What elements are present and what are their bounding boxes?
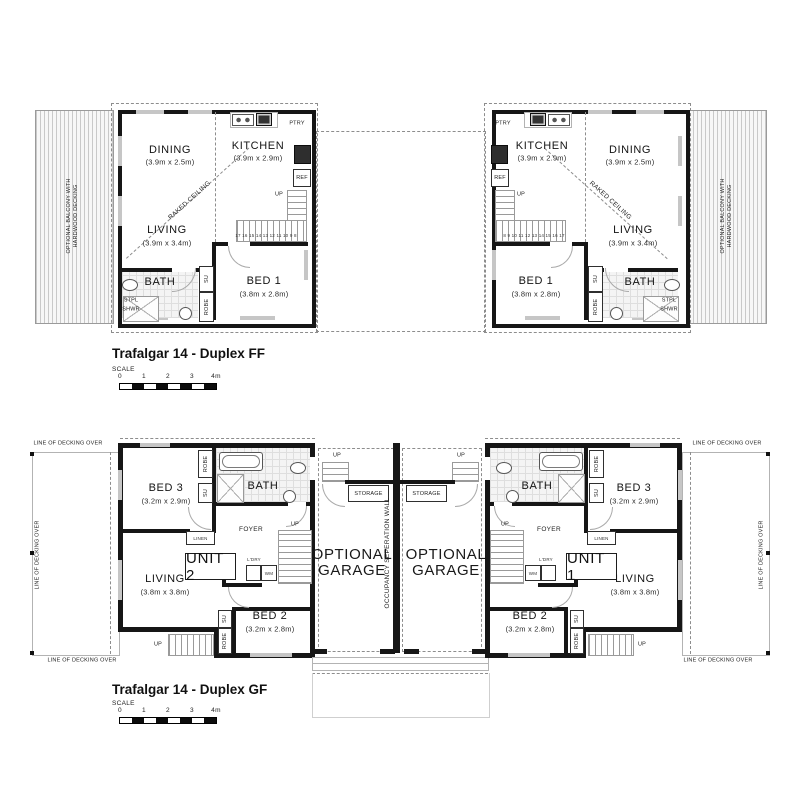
living-right-dim: (3.9m x 3.4m) <box>609 238 658 247</box>
toilet-icon <box>664 279 680 291</box>
robe-ff-left-label: ROBE <box>204 299 210 315</box>
balcony-left-label: OPTIONAL BALCONY WITH HARDWOOD DECKING <box>66 178 80 253</box>
window <box>492 250 496 280</box>
wall <box>120 529 190 533</box>
gf-title: Trafalgar 14 - Duplex GF <box>112 682 267 697</box>
gf-left-up-label: UP <box>291 522 299 529</box>
window <box>678 196 682 226</box>
oven-tower-icon <box>294 145 311 164</box>
gf-scale-bar <box>119 717 217 724</box>
window <box>525 316 560 320</box>
su-gf-left-bed2: SU <box>218 610 232 628</box>
living-gf-right-label: LIVING <box>615 573 655 587</box>
su-gf-left-top-label: SU <box>203 489 209 497</box>
basin-icon <box>283 490 296 503</box>
window <box>188 110 212 114</box>
gf-left-roof-dash <box>120 438 315 439</box>
bed3-left-dim: (3.2m x 2.9m) <box>142 496 191 505</box>
ff-scale-tick: 0 <box>118 373 122 381</box>
garage-right-label: OPTIONAL GARAGE <box>406 547 487 579</box>
door-arc <box>228 587 249 608</box>
cooktop-icon <box>548 114 570 126</box>
driveway <box>312 673 490 718</box>
garage-right-line1: OPTIONAL <box>406 547 487 563</box>
wall <box>122 268 172 272</box>
shower-icon <box>558 474 585 503</box>
living-gf-right-dim: (3.8m x 3.8m) <box>611 587 660 596</box>
bath-gf-left-label: BATH <box>248 480 279 494</box>
su-ff-left-label: SU <box>204 275 210 283</box>
fridge-right: REF <box>491 169 509 187</box>
decking-label: LINE OF DECKING OVER <box>759 520 766 589</box>
bed3-right-dim: (3.2m x 2.9m) <box>610 496 659 505</box>
wall <box>250 242 308 246</box>
window <box>140 443 170 447</box>
robe-gf-left-top: ROBE <box>198 450 213 478</box>
bath-gf-right-label: BATH <box>522 480 553 494</box>
window <box>304 250 308 280</box>
deck-left <box>32 452 120 656</box>
ff-right-up-label: UP <box>517 192 525 199</box>
gf-scale-tick: 4m <box>211 707 221 715</box>
su-gf-right-bed2-label: SU <box>574 615 580 623</box>
bed1-right-dim: (3.8m x 2.8m) <box>512 289 561 298</box>
gf-scale-tick: 3 <box>190 707 194 715</box>
robe-gf-right-top: ROBE <box>589 450 604 478</box>
stpl-left-label: STPL <box>124 298 139 305</box>
wall <box>232 607 236 655</box>
window <box>250 653 292 657</box>
balcony-left-line2: HARDWOOD DECKING <box>73 178 80 253</box>
window <box>136 110 164 114</box>
kitchen-right-label: KITCHEN <box>516 140 568 154</box>
wall <box>118 627 218 632</box>
window <box>588 110 612 114</box>
bed3-left-label: BED 3 <box>149 482 184 496</box>
storage-right: STORAGE <box>406 485 447 502</box>
linen-right-label: LINEN <box>594 536 608 541</box>
ff-scale-tick: 3 <box>190 373 194 381</box>
deck-post <box>30 452 34 456</box>
sink-icon <box>530 113 546 126</box>
basin-icon <box>610 307 623 320</box>
basin-icon <box>179 307 192 320</box>
pantry-right-label: PTRY <box>495 121 510 128</box>
bed2-right-label: BED 2 <box>513 610 548 624</box>
deck-post <box>766 452 770 456</box>
gf-right-stairs <box>490 530 524 584</box>
dining-left-label: DINING <box>149 144 191 158</box>
door-arc <box>552 587 573 608</box>
shwr-left-label: SHWR <box>122 307 140 314</box>
ff-scale-bar <box>119 383 217 390</box>
wm-left-label: WM <box>265 571 273 576</box>
gf-scale-tick: 0 <box>118 707 122 715</box>
bed1-right-label: BED 1 <box>519 275 554 289</box>
wall <box>404 649 419 654</box>
basin-icon <box>506 490 519 503</box>
gf-right-roof-dash <box>485 438 680 439</box>
gf-scale-tick: 1 <box>142 707 146 715</box>
storage-left-label: STORAGE <box>354 491 382 497</box>
window <box>678 560 682 600</box>
gf-right-entry-steps <box>588 634 634 656</box>
decking-label: LINE OF DECKING OVER <box>35 520 42 589</box>
fridge-right-label: REF <box>494 175 506 181</box>
linen-left: LINEN <box>186 531 215 545</box>
wall <box>582 627 682 632</box>
su-ff-left: SU <box>199 266 214 292</box>
bed3-right-label: BED 3 <box>617 482 652 496</box>
wall <box>492 242 550 246</box>
wall <box>380 649 395 654</box>
garage-apron <box>312 663 489 671</box>
su-gf-left-top: SU <box>198 483 213 503</box>
deck-post <box>766 651 770 655</box>
robe-ff-right: ROBE <box>588 292 603 322</box>
garage-right-entry-stairs <box>452 462 479 482</box>
kitchen-left-dim: (3.9m x 2.9m) <box>234 153 283 162</box>
toilet-icon <box>496 462 512 474</box>
deck-post <box>766 551 770 555</box>
wall <box>345 480 455 484</box>
garage-right-up-label: UP <box>457 453 465 460</box>
fridge-left: REF <box>293 169 311 187</box>
bed1-left-dim: (3.8m x 2.8m) <box>240 289 289 298</box>
living-left-label: LIVING <box>147 224 187 238</box>
linen-left-label: LINEN <box>193 536 207 541</box>
balcony-right-line1: OPTIONAL BALCONY WITH <box>720 178 727 253</box>
ff-right-stairs-upper <box>495 190 515 222</box>
window <box>678 136 682 166</box>
washing-machine-right: WM <box>525 565 541 581</box>
oven-tower-icon <box>491 145 508 164</box>
toilet-icon <box>290 462 306 474</box>
balcony-left-line1: OPTIONAL BALCONY WITH <box>66 178 73 253</box>
bed2-left-dim: (3.2m x 2.8m) <box>246 624 295 633</box>
kitchen-left-label: KITCHEN <box>232 140 284 154</box>
ff-scale-tick: 2 <box>166 373 170 381</box>
ff-scale-tick: 1 <box>142 373 146 381</box>
window <box>240 316 275 320</box>
gf-right-steps-up-label: UP <box>638 642 646 649</box>
bed1-left-label: BED 1 <box>247 275 282 289</box>
ff-right-ceiling-line <box>585 112 586 242</box>
window <box>630 443 660 447</box>
cooktop-icon <box>232 114 254 126</box>
ff-left-stairs-upper <box>287 190 307 222</box>
garage-left-label: OPTIONAL GARAGE <box>312 547 393 579</box>
wall <box>485 502 494 506</box>
bath-ff-left-label: BATH <box>145 276 176 290</box>
toilet-icon <box>122 279 138 291</box>
unit1-box: UNIT 1 <box>566 553 617 580</box>
window <box>118 196 122 226</box>
dining-right-dim: (3.9m x 2.5m) <box>606 157 655 166</box>
gf-left-entry-steps <box>168 634 214 656</box>
su-gf-right-top-label: SU <box>594 489 600 497</box>
door-arc <box>188 507 211 530</box>
robe-gf-right-bed2: ROBE <box>570 628 584 654</box>
wall <box>312 649 327 654</box>
ldry-right-label: L'DRY <box>539 557 553 563</box>
foyer-left-label: FOYER <box>239 526 263 534</box>
bed2-right-dim: (3.2m x 2.8m) <box>506 624 555 633</box>
floorplan-canvas: OPTIONAL BALCONY WITH HARDWOOD DECKING O… <box>0 0 800 800</box>
washing-machine-left: WM <box>261 565 277 581</box>
balcony-right-line2: HARDWOOD DECKING <box>727 178 734 253</box>
unit2-box: UNIT 2 <box>185 553 236 580</box>
gf-right-up-label: UP <box>501 522 509 529</box>
su-gf-right-top: SU <box>589 483 604 503</box>
robe-gf-left-bed2-label: ROBE <box>222 633 228 649</box>
garage-right-line2: GARAGE <box>406 563 487 579</box>
fridge-left-label: REF <box>296 175 308 181</box>
ff-right-stair-numbers: 8 9 10 11 12 13 14 15 16 17 <box>503 233 564 239</box>
su-gf-right-bed2: SU <box>570 610 584 628</box>
window <box>118 560 122 600</box>
living-gf-left-label: LIVING <box>145 573 185 587</box>
kitchen-right-dim: (3.9m x 2.9m) <box>518 153 567 162</box>
deck-post <box>30 651 34 655</box>
gf-scale-tick: 2 <box>166 707 170 715</box>
gf-left-steps-up-label: UP <box>154 642 162 649</box>
window <box>508 653 550 657</box>
robe-gf-left-bed2: ROBE <box>218 628 232 654</box>
decking-label: LINE OF DECKING OVER <box>47 658 116 665</box>
robe-ff-right-label: ROBE <box>593 299 599 315</box>
ff-left-stair-numbers: 17 16 15 14 13 12 11 10 9 8 <box>235 233 296 239</box>
living-right-label: LIVING <box>613 224 653 238</box>
bathtub-icon <box>219 452 263 471</box>
wall <box>628 268 678 272</box>
robe-ff-left: ROBE <box>199 292 214 322</box>
bath-ff-right-label: BATH <box>625 276 656 290</box>
living-left-dim: (3.9m x 3.4m) <box>143 238 192 247</box>
ldry-left-label: L'DRY <box>247 557 261 563</box>
shower-icon <box>217 474 244 503</box>
garage-left-up-label: UP <box>333 453 341 460</box>
storage-right-label: STORAGE <box>412 491 440 497</box>
ff-title: Trafalgar 14 - Duplex FF <box>112 346 265 361</box>
gf-scale-label: SCALE <box>112 700 135 707</box>
deck-post <box>30 551 34 555</box>
wall <box>306 502 315 506</box>
stpl-right-label: STPL <box>662 298 677 305</box>
pantry-left-label: PTRY <box>289 121 304 128</box>
shwr-right-label: SHWR <box>660 307 678 314</box>
su-gf-left-bed2-label: SU <box>222 615 228 623</box>
foyer-right-label: FOYER <box>537 526 561 534</box>
bathtub-icon <box>539 452 583 471</box>
su-ff-right-label: SU <box>593 275 599 283</box>
ff-scale-label: SCALE <box>112 366 135 373</box>
dining-left-dim: (3.9m x 2.5m) <box>146 157 195 166</box>
ff-middle-connector <box>316 131 486 332</box>
deck-right-inner-dash <box>690 452 691 654</box>
sink-icon <box>256 113 272 126</box>
dining-right-label: DINING <box>609 144 651 158</box>
window <box>636 110 664 114</box>
wall <box>564 607 568 655</box>
su-ff-right: SU <box>588 266 603 292</box>
decking-label: LINE OF DECKING OVER <box>683 658 752 665</box>
laundry-tub-icon <box>246 565 261 581</box>
door-arc <box>590 507 613 530</box>
ff-scale-tick: 4m <box>211 373 221 381</box>
deck-right <box>682 452 770 656</box>
gf-left-stairs <box>278 530 312 584</box>
separation-wall <box>393 443 400 653</box>
living-gf-left-dim: (3.8m x 3.8m) <box>141 587 190 596</box>
deck-left-inner-dash <box>110 452 111 654</box>
balcony-right-label: OPTIONAL BALCONY WITH HARDWOOD DECKING <box>720 178 734 253</box>
storage-left: STORAGE <box>348 485 389 502</box>
window <box>678 470 682 500</box>
wm-right-label: WM <box>529 571 537 576</box>
window <box>118 136 122 166</box>
garage-left-entry-stairs <box>322 462 349 482</box>
ff-left-up-label: UP <box>275 192 283 199</box>
robe-gf-left-top-label: ROBE <box>203 456 209 472</box>
decking-label: LINE OF DECKING OVER <box>692 441 761 448</box>
decking-label: LINE OF DECKING OVER <box>33 441 102 448</box>
linen-right: LINEN <box>587 531 616 545</box>
garage-left-line2: GARAGE <box>312 563 393 579</box>
wall <box>610 529 680 533</box>
robe-gf-right-bed2-label: ROBE <box>574 633 580 649</box>
wall <box>310 443 315 457</box>
window <box>118 470 122 500</box>
laundry-tub-icon <box>541 565 556 581</box>
garage-left-line1: OPTIONAL <box>312 547 393 563</box>
robe-gf-right-top-label: ROBE <box>594 456 600 472</box>
bed2-left-label: BED 2 <box>253 610 288 624</box>
